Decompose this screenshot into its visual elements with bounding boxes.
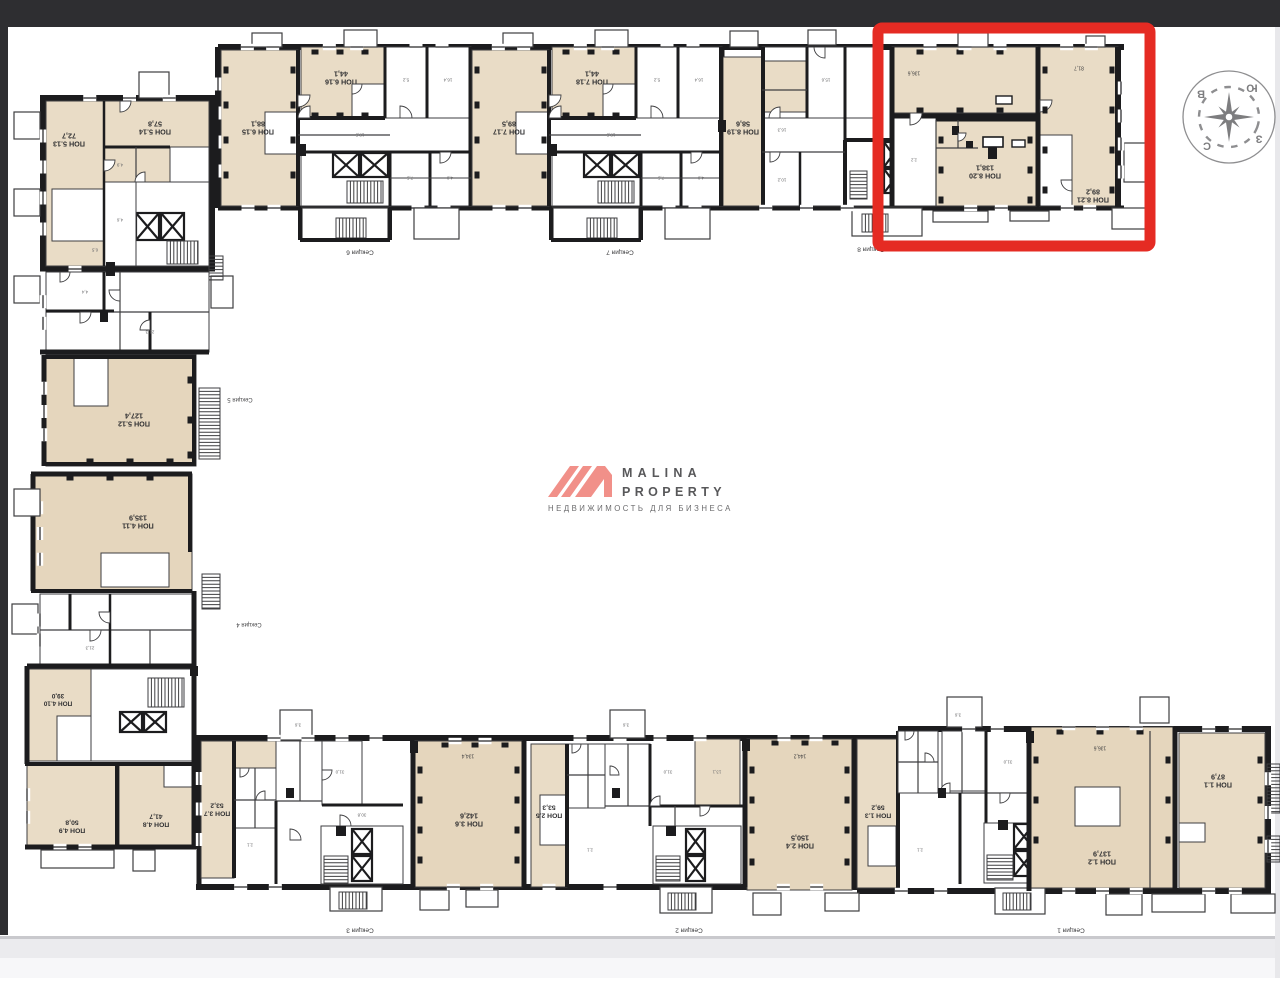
svg-text:Секция 4: Секция 4	[236, 621, 262, 627]
svg-text:ПОН 1.3: ПОН 1.3	[865, 812, 892, 819]
svg-text:21,3: 21,3	[85, 645, 94, 650]
svg-text:39,0: 39,0	[51, 692, 64, 699]
svg-text:89,2: 89,2	[1086, 187, 1100, 196]
svg-text:ПОН 2.5: ПОН 2.5	[536, 812, 563, 819]
svg-text:3,6: 3,6	[294, 722, 301, 727]
svg-text:7,5: 7,5	[657, 175, 664, 180]
svg-text:2,2: 2,2	[910, 158, 916, 163]
svg-text:21,3: 21,3	[145, 329, 154, 334]
svg-text:127,4: 127,4	[125, 411, 143, 420]
svg-text:MALINA: MALINA	[622, 466, 702, 480]
svg-text:44,1: 44,1	[334, 69, 348, 78]
svg-text:ПОН 4.8: ПОН 4.8	[143, 821, 170, 828]
svg-text:58,6: 58,6	[736, 119, 750, 128]
svg-text:Секция 2: Секция 2	[675, 927, 703, 934]
svg-text:136,6: 136,6	[1094, 744, 1107, 750]
svg-text:ПОН 4.10: ПОН 4.10	[43, 700, 72, 707]
svg-text:НЕДВИЖИМОСТЬ ДЛЯ БИЗНЕСА: НЕДВИЖИМОСТЬ ДЛЯ БИЗНЕСА	[548, 504, 733, 513]
svg-text:2,1: 2,1	[246, 843, 252, 848]
svg-text:ПОН 4.9: ПОН 4.9	[59, 827, 86, 834]
svg-text:4,0: 4,0	[697, 175, 704, 180]
svg-text:136,6: 136,6	[908, 69, 921, 75]
svg-text:ПОН 3.7: ПОН 3.7	[204, 810, 231, 817]
svg-text:89,5: 89,5	[502, 119, 516, 128]
svg-text:С: С	[1203, 140, 1211, 152]
svg-text:134,4: 134,4	[462, 752, 475, 758]
svg-text:Секция 1: Секция 1	[1057, 927, 1085, 934]
svg-text:PROPERTY: PROPERTY	[622, 485, 726, 499]
svg-text:6,5: 6,5	[91, 247, 98, 252]
svg-text:150,5: 150,5	[791, 833, 809, 842]
svg-text:44,1: 44,1	[585, 69, 599, 78]
svg-text:59,2: 59,2	[871, 804, 884, 811]
svg-text:138,1: 138,1	[976, 163, 994, 172]
svg-text:30,8: 30,8	[357, 812, 366, 817]
svg-text:142,6: 142,6	[460, 811, 478, 820]
svg-text:В: В	[1197, 88, 1205, 100]
svg-text:4,9: 4,9	[116, 162, 123, 167]
svg-text:16,4: 16,4	[443, 77, 452, 82]
svg-text:31,0: 31,0	[1003, 759, 1012, 764]
svg-text:144,2: 144,2	[794, 752, 807, 758]
svg-text:Секция 7: Секция 7	[606, 249, 634, 256]
svg-text:Ю: Ю	[1246, 82, 1257, 94]
svg-text:15,6: 15,6	[821, 77, 830, 82]
svg-text:88,1: 88,1	[251, 119, 265, 128]
svg-text:137,9: 137,9	[1093, 849, 1111, 858]
svg-text:5,2: 5,2	[402, 77, 409, 82]
svg-text:Секция 3: Секция 3	[346, 927, 374, 934]
svg-text:18,5: 18,5	[606, 132, 615, 137]
svg-text:10,2: 10,2	[777, 177, 786, 182]
svg-text:16,4: 16,4	[694, 77, 703, 82]
svg-text:16,3: 16,3	[777, 127, 786, 132]
svg-text:57,8: 57,8	[148, 119, 162, 128]
svg-text:4,0: 4,0	[446, 175, 453, 180]
svg-text:53,3: 53,3	[542, 804, 555, 811]
svg-text:3,6: 3,6	[622, 722, 629, 727]
svg-text:Секция 5: Секция 5	[227, 396, 253, 402]
svg-text:5,2: 5,2	[653, 77, 660, 82]
svg-text:Секция 6: Секция 6	[346, 249, 374, 256]
svg-text:50,8: 50,8	[65, 819, 78, 826]
svg-text:2,1: 2,1	[916, 848, 922, 853]
svg-text:13,1: 13,1	[712, 769, 721, 774]
svg-text:З: З	[1255, 133, 1262, 145]
svg-text:31,0: 31,0	[663, 769, 672, 774]
svg-text:31,0: 31,0	[335, 769, 344, 774]
svg-text:87,9: 87,9	[1211, 772, 1225, 781]
svg-text:3,6: 3,6	[954, 712, 961, 717]
svg-text:18,5: 18,5	[355, 132, 364, 137]
svg-text:2,1: 2,1	[586, 848, 592, 853]
svg-text:72,7: 72,7	[62, 131, 76, 140]
svg-text:4,6: 4,6	[116, 217, 123, 222]
svg-text:41,7: 41,7	[149, 813, 162, 820]
svg-text:4,4: 4,4	[81, 289, 88, 294]
svg-text:135,9: 135,9	[129, 513, 147, 522]
svg-text:53,2: 53,2	[210, 802, 223, 809]
svg-text:81,7: 81,7	[1074, 64, 1084, 70]
svg-text:7,5: 7,5	[406, 175, 413, 180]
